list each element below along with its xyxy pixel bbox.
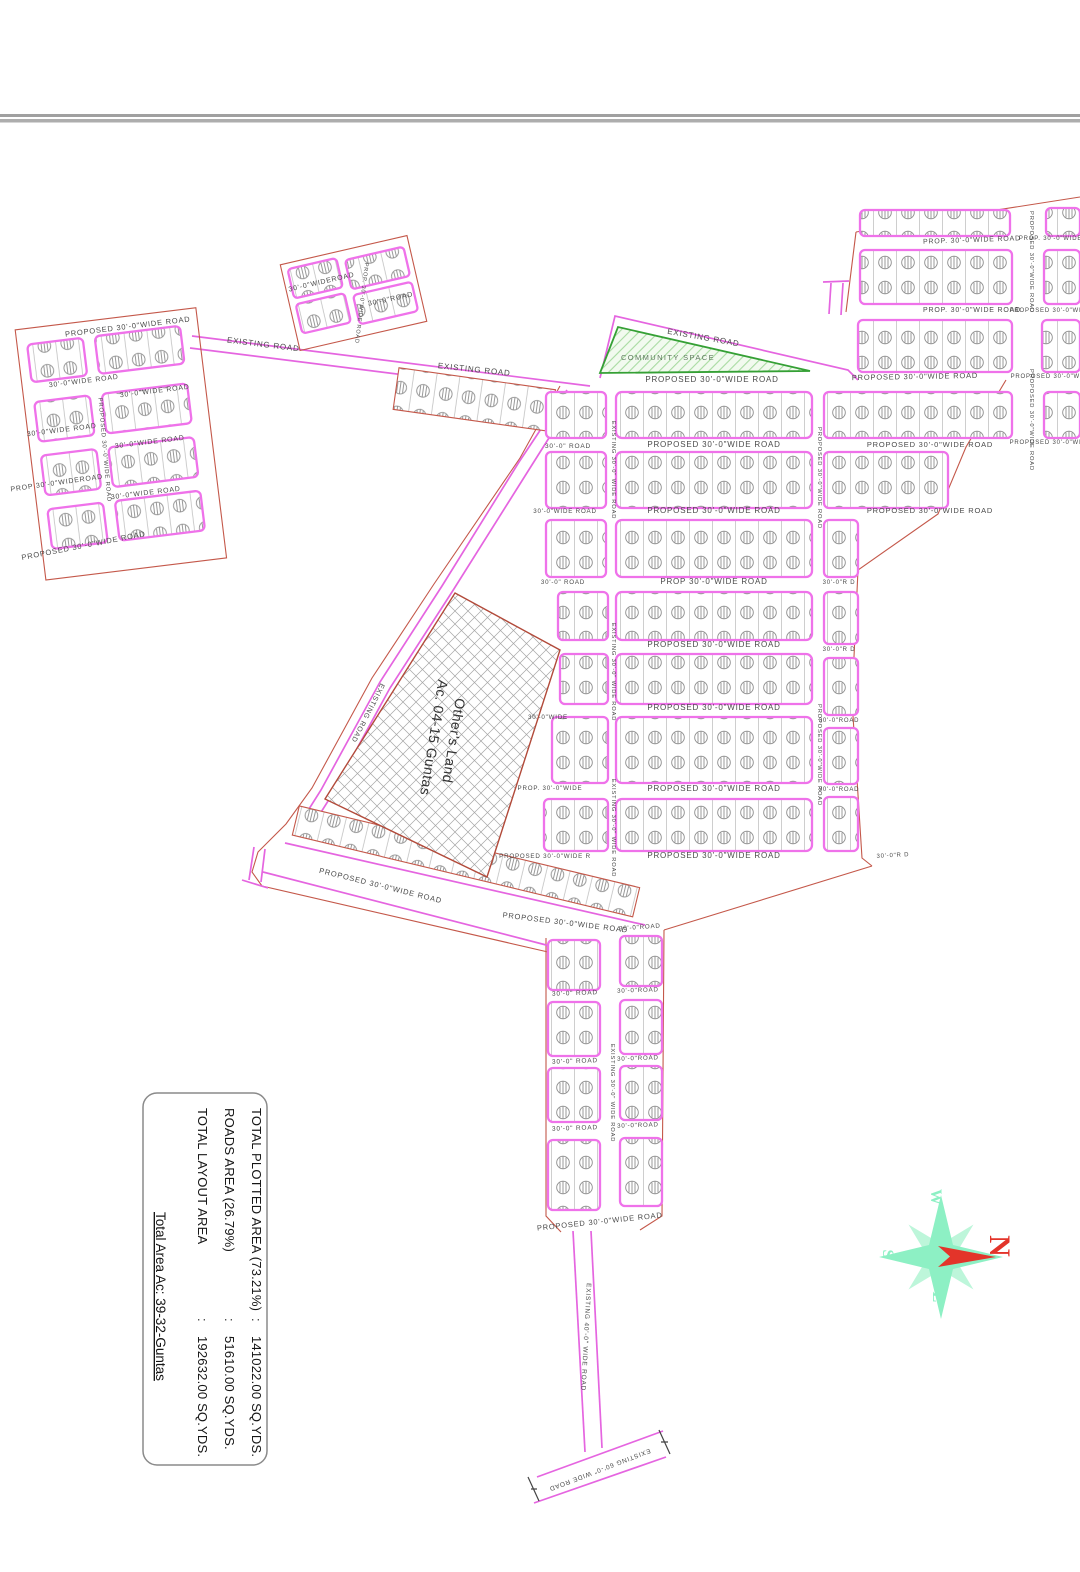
plot-block <box>1046 208 1080 236</box>
compass-letter-w: W <box>927 1189 944 1205</box>
road-label: PROPOSED 30'-0"WIDE R <box>499 853 591 860</box>
road-label: PROPOSED 30'-0"WIDE ROAD <box>647 440 780 449</box>
road-label: PROPOSED 30'-0"WIDE ROAD <box>852 371 978 382</box>
plot-block <box>860 250 1012 304</box>
plot-block <box>824 520 858 577</box>
road-label: EXISTING 30'-0" WIDE ROAD <box>610 421 616 520</box>
road-line <box>242 880 268 888</box>
plot-block <box>616 520 812 577</box>
plot-block <box>824 452 948 508</box>
plot-block <box>345 247 410 290</box>
plot-blocks <box>15 208 1080 1210</box>
plot-block <box>1042 320 1080 372</box>
compass-rose: N W S E <box>879 1189 1016 1319</box>
plot-block <box>620 936 662 986</box>
road-label: 30'-0"ROAD <box>819 787 860 793</box>
plot-block <box>41 449 101 496</box>
road-label: EXISTING 40'-0" WIDE ROAD <box>579 1283 592 1391</box>
road-label: 30'-0"ROAD <box>819 718 860 724</box>
plot-block <box>620 1000 662 1054</box>
plot-block <box>616 592 812 640</box>
compass-letter-s: S <box>879 1250 896 1259</box>
plot-block <box>544 799 608 851</box>
top-divider <box>0 114 1080 123</box>
layout-plan-page: COMMUNITY SPACE Other's Land Ac. 04-15 G… <box>0 0 1080 1572</box>
legend-row-plotted: TOTAL PLOTTED AREA (73.21%) : 141022.00 … <box>249 1108 264 1457</box>
road-label: PROP. 30'-0"WIDE <box>518 785 583 792</box>
plot-block <box>548 1140 600 1210</box>
plot-block <box>1044 392 1080 438</box>
road-line <box>534 1457 666 1503</box>
road-label: EXISTING 30'-0" WIDE ROAD <box>609 1044 615 1143</box>
road-line <box>823 281 849 282</box>
legend-label: ROADS AREA (26.79%) <box>222 1108 237 1252</box>
road-label: PROP. 30'-0"WIDE ROAD <box>923 307 1021 314</box>
plot-block <box>616 717 812 783</box>
road-end-tick <box>528 1477 539 1501</box>
compass-letter-n: N <box>983 1235 1016 1257</box>
legend-sep: : <box>222 1318 237 1322</box>
legend-label: TOTAL PLOTTED AREA (73.21%) <box>249 1108 264 1311</box>
road-line <box>261 849 265 882</box>
boundary-line <box>846 232 856 312</box>
road-line <box>591 1231 602 1448</box>
road-label: PROPOSED 30'-0"WIDE ROAD <box>318 866 443 905</box>
compass-letter-e: E <box>929 1292 946 1303</box>
road-label: PROPOSED 30'-0"WIDE ROAD <box>1011 374 1080 380</box>
legend-label: TOTAL LAYOUT AREA <box>195 1108 210 1244</box>
road-label: 30'-0"R D <box>823 647 856 653</box>
road-label: PROPOSED 30'-0"WIDE ROAD <box>647 703 780 712</box>
road-label: PROPOSED 30'-0"WIDE ROAD <box>1028 369 1034 471</box>
plot-block <box>824 592 858 644</box>
plot-block <box>27 338 87 383</box>
road-label: EXISTING 30'-0" WIDE ROAD <box>610 623 616 722</box>
community-space-label: COMMUNITY SPACE <box>621 353 715 362</box>
road-label: 30'-0"ROAD <box>617 1121 659 1129</box>
plot-block <box>558 592 608 640</box>
road-label: EXISTING 30'-0" WIDE ROAD <box>610 779 616 878</box>
road-label: PROP 30'-0"WIDE ROAD <box>660 577 767 586</box>
road-line <box>829 283 831 314</box>
road-label: PROPOSED 30'-0"WIDE ROAD <box>647 784 780 793</box>
road-label: 30'-0" ROAD <box>552 989 598 998</box>
road-line <box>841 283 843 315</box>
plot-block <box>548 1002 600 1056</box>
layout-plan-drawing: COMMUNITY SPACE Other's Land Ac. 04-15 G… <box>0 0 1080 1572</box>
road-label: 30'-0"WIDE <box>528 714 568 721</box>
road-end-tick <box>659 1430 670 1454</box>
road-label: 30'-0" ROAD <box>545 443 591 450</box>
road-label: EXISTING ROAD <box>226 336 300 354</box>
plot-block <box>860 210 1010 236</box>
road-label: PROPOSED 30'-0"WIDE ROAD <box>647 851 780 860</box>
road-label: PROPOSED 30'-0"WIDE ROAD <box>867 506 993 515</box>
road-label: 30'-0" ROAD <box>552 1124 598 1133</box>
plot-block <box>616 799 812 851</box>
plot-block <box>824 797 858 851</box>
road-label: PROPOSED 30'-0"WIDE ROAD <box>1028 211 1034 313</box>
plot-block <box>620 1138 662 1206</box>
plot-block <box>552 717 608 783</box>
boundary-line <box>664 866 872 930</box>
road-label: 30'-0"R D <box>823 580 856 586</box>
plot-block <box>548 940 600 990</box>
road-label: PROPOSED 30'-0"WIDE ROAD <box>647 506 780 515</box>
plot-block <box>546 392 606 438</box>
plot-block <box>616 452 812 508</box>
road-label: PROPOSED 30'-0"WIDE ROAD <box>536 1210 662 1232</box>
legend-value: 51610.00 SQ.YDS. <box>222 1336 237 1450</box>
plot-block <box>616 654 812 704</box>
strip-existing-road <box>393 368 555 432</box>
road-label: PROPOSED 30'-0"WIDE ROAD <box>816 427 822 529</box>
road-label: 30'-0"R D <box>876 852 909 860</box>
road-label: 30'-0" ROAD <box>541 579 585 586</box>
road-label: PROPOSED 30'-0"WIDE ROAD <box>1010 440 1080 446</box>
legend-sep: : <box>195 1318 210 1322</box>
legend-value: 141022.00 SQ.YDS. <box>249 1336 264 1457</box>
road-label: PROPOSED 30'-0"WIDE ROAD <box>502 910 628 934</box>
plot-block <box>824 728 858 784</box>
road-label: 30'-0"ROAD <box>619 923 661 933</box>
legend-total-area: Total Area Ac: 39-32-Guntas <box>153 1212 168 1381</box>
road-label: PROPOSED 30'-0"WIDE ROAD <box>645 375 778 384</box>
legend-box: TOTAL PLOTTED AREA (73.21%) : 141022.00 … <box>143 1093 267 1465</box>
plot-block <box>616 392 812 438</box>
legend-sep: : <box>249 1318 264 1322</box>
road-label: 30'-0"ROAD <box>617 1054 659 1062</box>
road-label: 30'-0"ROAD <box>617 986 659 994</box>
road-line <box>249 847 254 880</box>
plot-block <box>546 520 606 577</box>
plot-block <box>858 320 1012 372</box>
road-label: PROPOSED 30'-0"WIDE ROAD <box>867 440 993 449</box>
plot-block <box>620 1066 662 1120</box>
plot-block <box>548 1068 600 1122</box>
road-label: PROPOSED 30'-0"WIDE ROAD <box>1010 308 1080 314</box>
plot-block <box>560 654 608 704</box>
plot-block <box>1044 250 1080 304</box>
plot-block <box>296 293 351 333</box>
legend-value: 192632.00 SQ.YDS. <box>195 1336 210 1457</box>
plot-block <box>824 658 858 715</box>
plot-block <box>824 392 1012 438</box>
road-label: 30'-0"WIDE ROAD <box>533 508 597 515</box>
road-label: 30'-0" ROAD <box>552 1057 598 1066</box>
road-label: PROPOSED 30'-0"WIDE ROAD <box>647 640 780 649</box>
plot-block <box>546 452 606 508</box>
